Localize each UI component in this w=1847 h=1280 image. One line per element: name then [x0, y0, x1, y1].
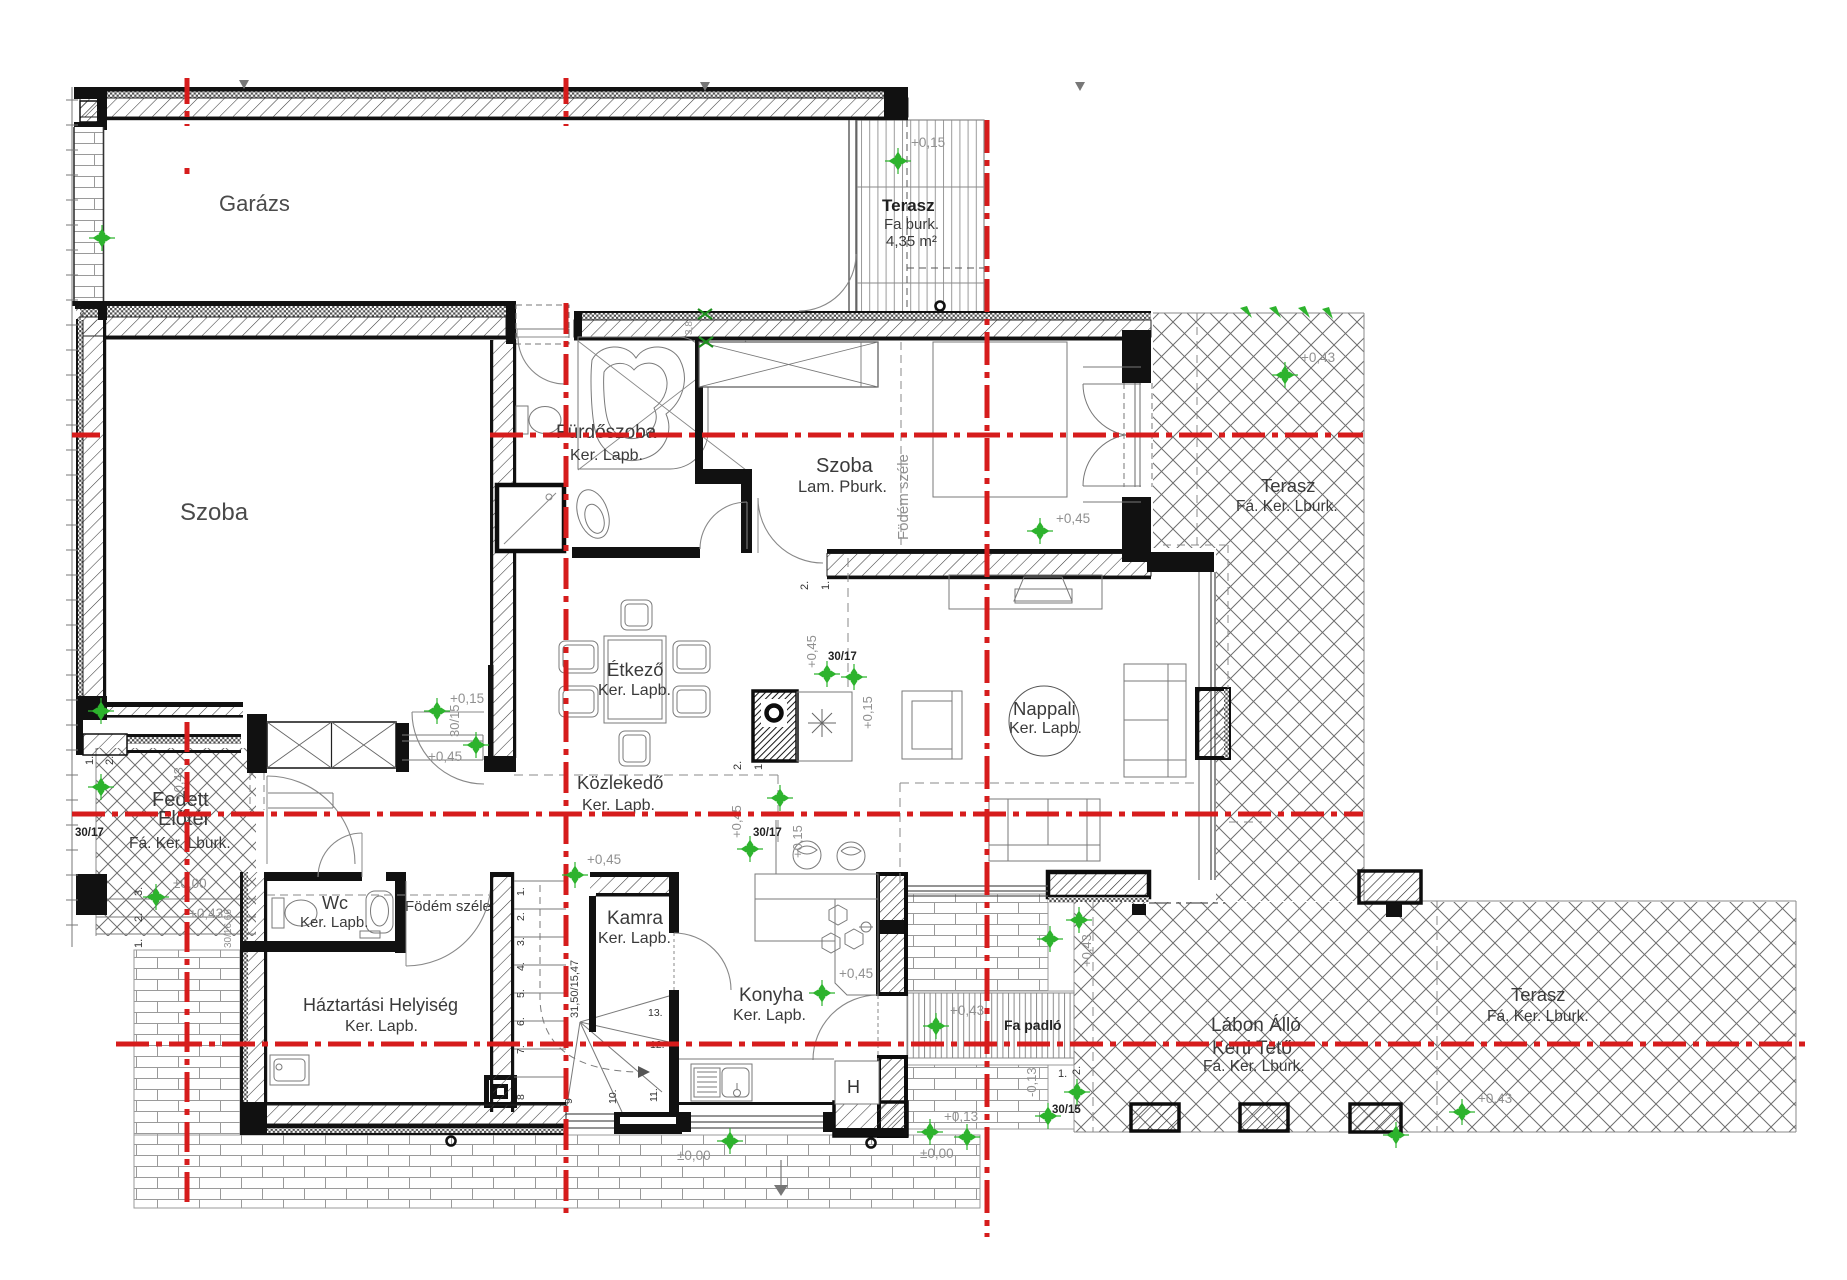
svg-text:Terasz: Terasz: [882, 196, 935, 215]
svg-text:Ker. Lapb.: Ker. Lapb.: [300, 914, 368, 931]
svg-text:1.: 1.: [515, 887, 527, 896]
svg-text:Födém széle: Födém széle: [895, 454, 912, 540]
svg-text:-0,13: -0,13: [1024, 1067, 1039, 1097]
svg-text:30/15: 30/15: [1052, 1104, 1081, 1116]
svg-text:30/15: 30/15: [447, 704, 462, 737]
svg-text:10.: 10.: [607, 1089, 619, 1104]
svg-text:Ker. Lapb.: Ker. Lapb.: [733, 1007, 806, 1024]
svg-text:1.: 1.: [1058, 1068, 1067, 1080]
svg-text:6.: 6.: [515, 1017, 527, 1026]
svg-text:30/16,66: 30/16,66: [223, 909, 234, 948]
svg-text:+0,43: +0,43: [950, 1003, 984, 1018]
svg-text:Ker. Lapb.: Ker. Lapb.: [1009, 720, 1082, 737]
svg-text:8: 8: [515, 1094, 527, 1100]
svg-text:+0,45: +0,45: [839, 966, 873, 981]
svg-text:Garázs: Garázs: [219, 191, 290, 216]
svg-text:1.: 1.: [820, 581, 832, 590]
svg-text:Lábon Álló: Lábon Álló: [1211, 1015, 1301, 1036]
svg-text:Fá. Ker. Lburk.: Fá. Ker. Lburk.: [129, 835, 231, 852]
svg-text:Konyha: Konyha: [739, 985, 804, 1006]
svg-text:1.: 1.: [133, 939, 145, 948]
svg-text:+0,45: +0,45: [1056, 511, 1090, 526]
svg-text:+0,45: +0,45: [729, 805, 744, 838]
svg-text:+0,15: +0,15: [450, 691, 484, 706]
svg-text:1.: 1.: [753, 761, 765, 770]
svg-text:2.: 2.: [732, 761, 744, 770]
svg-text:+0,43: +0,43: [189, 906, 223, 921]
svg-text:Terasz: Terasz: [1511, 984, 1566, 1005]
svg-text:Nappali: Nappali: [1013, 698, 1076, 719]
svg-text:+0,43: +0,43: [1079, 934, 1094, 967]
svg-text:Födém széle: Födém széle: [405, 898, 491, 915]
svg-text:Fá. Ker. Lburk.: Fá. Ker. Lburk.: [1203, 1058, 1305, 1075]
svg-text:+0,15: +0,15: [790, 825, 805, 858]
svg-text:+0,45: +0,45: [804, 635, 819, 668]
svg-text:2.: 2.: [799, 581, 811, 590]
svg-text:+0,15: +0,15: [860, 696, 875, 729]
svg-text:Háztartási Helyiség: Háztartási Helyiség: [303, 995, 458, 1015]
svg-text:30/17: 30/17: [828, 651, 857, 663]
svg-text:+0,15: +0,15: [911, 135, 945, 150]
svg-text:Közlekedő: Közlekedő: [577, 772, 663, 793]
svg-text:Ker. Lapb.: Ker. Lapb.: [345, 1018, 418, 1035]
svg-text:Ker. Lapb.: Ker. Lapb.: [570, 447, 643, 464]
svg-text:Kamra: Kamra: [607, 908, 663, 929]
svg-text:Szoba: Szoba: [816, 455, 874, 477]
svg-text:1.: 1.: [84, 756, 96, 765]
svg-text:H: H: [847, 1077, 860, 1097]
svg-text:Kerti Tető: Kerti Tető: [1212, 1038, 1292, 1059]
svg-text:2.: 2.: [133, 913, 145, 922]
svg-text:Fa padló: Fa padló: [1004, 1017, 1062, 1033]
svg-text:2.: 2.: [104, 756, 116, 765]
svg-text:Fa burk.: Fa burk.: [884, 216, 939, 233]
svg-text:+0,43: +0,43: [1478, 1091, 1512, 1106]
svg-text:30/17: 30/17: [753, 827, 782, 839]
svg-text:Szoba: Szoba: [180, 499, 249, 526]
svg-text:Előtér: Előtér: [158, 808, 211, 830]
svg-text:+0,13: +0,13: [944, 1109, 978, 1124]
svg-text:+0,43: +0,43: [171, 767, 186, 800]
svg-text:4.: 4.: [515, 962, 527, 971]
svg-text:Wc: Wc: [322, 893, 348, 913]
svg-text:11.: 11.: [648, 1088, 660, 1102]
svg-text:13.: 13.: [648, 1007, 663, 1019]
svg-text:Ker. Lapb.: Ker. Lapb.: [598, 930, 671, 947]
svg-text:Ker. Lapb.: Ker. Lapb.: [598, 682, 671, 699]
svg-text:7.: 7.: [515, 1045, 527, 1054]
svg-text:5.: 5.: [515, 989, 527, 998]
svg-text:+0,45: +0,45: [587, 852, 621, 867]
svg-text:Fá. Ker. Lburk.: Fá. Ker. Lburk.: [1487, 1008, 1589, 1025]
svg-text:Fá. Ker. Lburk.: Fá. Ker. Lburk.: [1236, 498, 1338, 515]
svg-text:±0,00: ±0,00: [677, 1148, 711, 1163]
svg-text:±0,00: ±0,00: [920, 1146, 954, 1161]
svg-text:3,8: 3,8: [684, 321, 695, 335]
svg-text:3.: 3.: [133, 887, 145, 896]
svg-text:2.: 2.: [515, 912, 527, 921]
svg-text:Lam. Pburk.: Lam. Pburk.: [798, 478, 887, 496]
svg-text:31,50/15,47: 31,50/15,47: [569, 960, 581, 1018]
svg-text:Ker. Lapb.: Ker. Lapb.: [582, 797, 655, 814]
svg-text:3.: 3.: [515, 937, 527, 946]
svg-text:+0,43: +0,43: [1301, 350, 1335, 365]
svg-text:Terasz: Terasz: [1261, 475, 1316, 496]
svg-text:Étkező: Étkező: [607, 659, 664, 680]
svg-text:30/17: 30/17: [75, 827, 104, 839]
svg-text:2.: 2.: [1071, 1066, 1083, 1075]
svg-text:+0,45: +0,45: [428, 749, 462, 764]
svg-text:±0,00: ±0,00: [173, 876, 207, 891]
svg-text:4,35 m²: 4,35 m²: [886, 233, 937, 250]
